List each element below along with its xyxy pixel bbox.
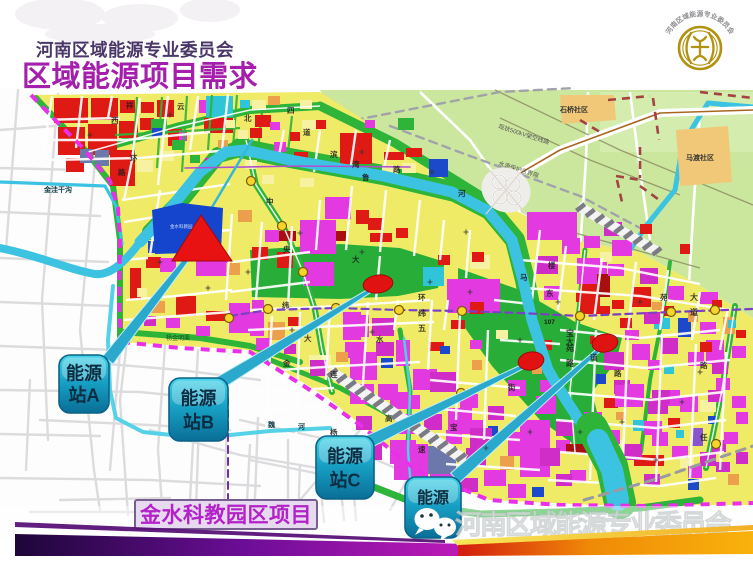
svg-text:河南区域能源专业委员会: 河南区域能源专业委员会 [36,40,234,60]
svg-text:大: 大 [304,333,312,343]
svg-text:河: 河 [458,188,466,198]
svg-text:连: 连 [330,369,338,379]
svg-text:云: 云 [177,102,185,111]
svg-text:东: 东 [546,288,554,298]
svg-text:魏: 魏 [267,420,275,429]
svg-text:西: 西 [111,116,119,125]
svg-text:环: 环 [130,154,138,163]
svg-text:路: 路 [118,167,126,177]
svg-text:大: 大 [352,254,360,264]
svg-text:能源: 能源 [181,387,217,408]
svg-text:北: 北 [244,113,252,123]
svg-text:能源: 能源 [417,488,449,507]
svg-text:马: 马 [520,273,528,282]
svg-text:金洼干沟: 金洼干沟 [43,185,72,194]
svg-text:107: 107 [544,319,555,326]
svg-text:任: 任 [699,432,708,442]
svg-text:滨: 滨 [330,149,338,159]
svg-text:路: 路 [614,368,622,378]
svg-text:苑: 苑 [659,292,668,302]
svg-text:能源: 能源 [66,362,102,383]
svg-text:祥: 祥 [126,100,134,110]
svg-text:四: 四 [287,106,295,115]
svg-text:中: 中 [266,196,274,206]
svg-text:速: 速 [418,444,426,454]
svg-text:纬: 纬 [282,300,290,310]
svg-text:路: 路 [393,164,401,174]
svg-text:湾: 湾 [352,159,360,169]
svg-text:楼: 楼 [548,260,556,270]
svg-text:河: 河 [298,422,305,431]
svg-text:站A: 站A [69,384,100,405]
svg-text:宝苑路: 宝苑路 [565,328,575,368]
svg-text:道: 道 [590,352,598,362]
svg-text:马渡社区: 马渡社区 [686,153,714,162]
svg-text:杨金明渠: 杨金明渠 [166,334,190,342]
svg-text:石桥社区: 石桥社区 [559,105,588,114]
svg-text:环: 环 [418,293,426,302]
svg-text:道: 道 [303,127,311,137]
svg-text:站C: 站C [330,469,361,490]
svg-text:站B: 站B [183,411,214,432]
svg-text:水: 水 [376,334,384,344]
svg-text:金水科教园区项目: 金水科教园区项目 [139,503,312,527]
svg-text:区域能源项目需求: 区域能源项目需求 [22,60,258,93]
svg-text:街: 街 [507,382,516,392]
svg-text:高: 高 [385,413,393,423]
svg-text:金: 金 [282,358,291,368]
svg-text:鲁: 鲁 [362,172,370,182]
svg-text:金水科教园: 金水科教园 [170,223,193,230]
svg-text:能源: 能源 [327,445,363,466]
svg-text:宝: 宝 [450,422,458,432]
svg-text:央: 央 [283,244,291,254]
svg-text:路: 路 [700,360,708,370]
